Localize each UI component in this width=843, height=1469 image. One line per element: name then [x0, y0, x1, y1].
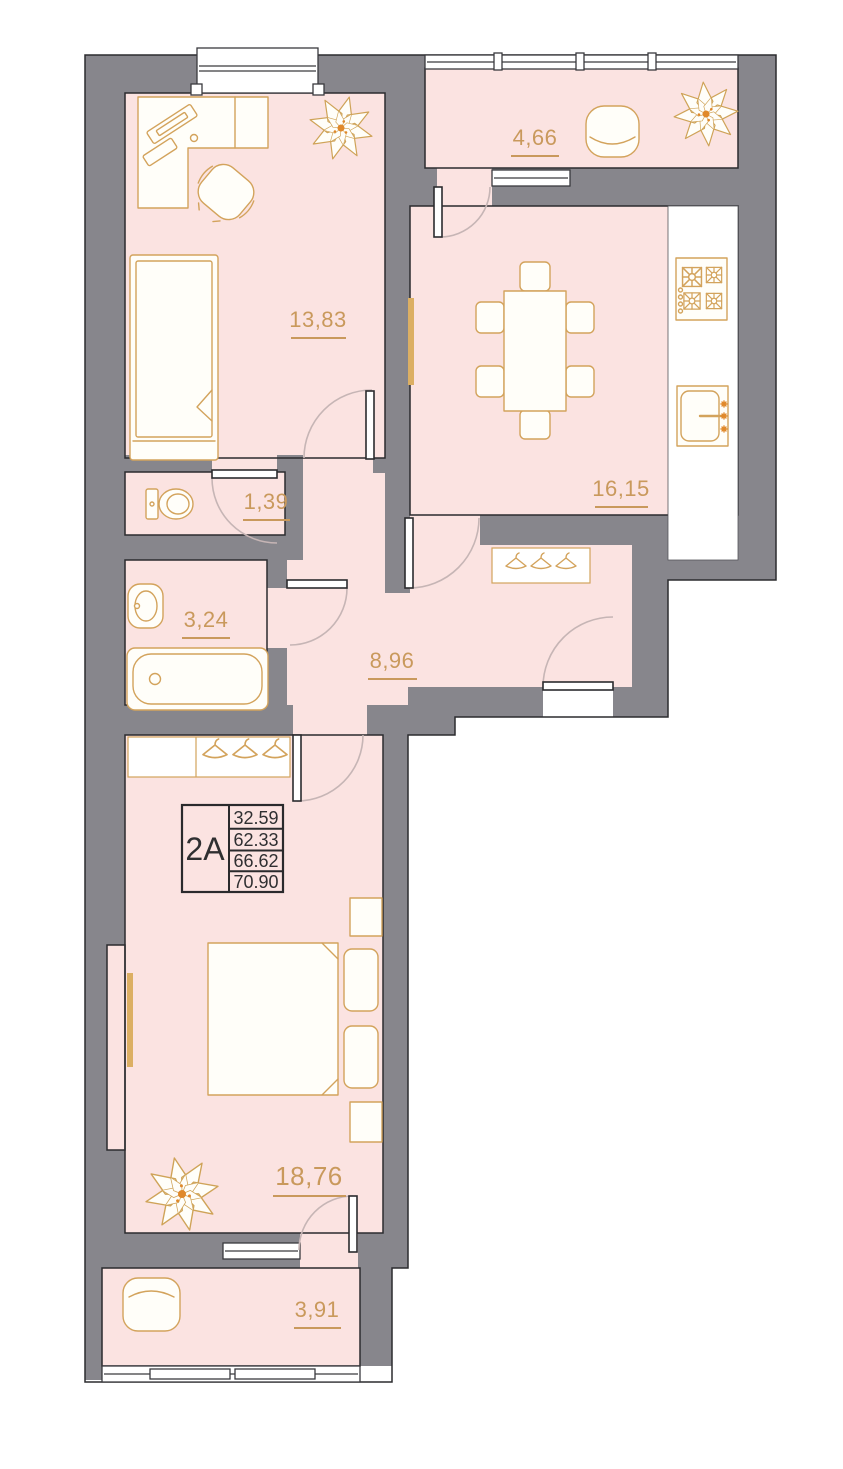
door-icon [366, 391, 374, 459]
armchair-icon [123, 1278, 180, 1331]
room-label-bedroom-top: 13,83 [289, 307, 347, 332]
dining-chair-icon [476, 366, 504, 397]
dining-chair-icon [566, 366, 594, 397]
unit-area-2: 62.33 [233, 830, 278, 850]
window-anchor [191, 84, 202, 95]
unit-area-3: 66.62 [233, 851, 278, 871]
pouf-icon [586, 106, 639, 157]
door-icon [212, 470, 277, 478]
radiator-icon [127, 973, 133, 1067]
floor-plan-drawing: 13,83 4,66 16,15 1,39 3,24 8,96 18,76 3,… [0, 0, 843, 1469]
wall-segment [738, 55, 776, 580]
bedroom-door-opening [293, 705, 367, 735]
window-mullion [576, 53, 584, 70]
dining-chair-icon [476, 302, 504, 333]
door-icon [434, 187, 442, 237]
wall-segment [85, 1268, 102, 1380]
entrance-door-opening [543, 687, 613, 717]
wall-segment [383, 730, 408, 1233]
door-icon [293, 735, 301, 801]
window-anchor [313, 84, 324, 95]
stove-icon [676, 258, 727, 320]
washbasin-icon [128, 584, 163, 628]
room-label-balcony-top: 4,66 [513, 125, 558, 150]
unit-area-1: 32.59 [233, 808, 278, 828]
bedroom-wall-niche [107, 945, 125, 1150]
wall-segment [480, 515, 632, 545]
double-bed-icon [208, 943, 338, 1095]
toilet-icon [146, 489, 193, 519]
wall-segment [267, 560, 287, 588]
bathtub-icon [127, 648, 268, 710]
window-pane [150, 1369, 230, 1379]
nightstand-icon [350, 898, 382, 936]
door-icon [543, 682, 613, 690]
window-pane [235, 1369, 315, 1379]
desk-accessory [191, 135, 198, 142]
window-mullion [494, 53, 502, 70]
window-mullion [648, 53, 656, 70]
unit-area-4: 70.90 [233, 872, 278, 892]
floor-plan-page: 13,83 4,66 16,15 1,39 3,24 8,96 18,76 3,… [0, 0, 843, 1469]
door-icon [349, 1196, 357, 1252]
room-label-bedroom-main: 18,76 [275, 1161, 343, 1191]
room-label-hallway: 8,96 [370, 648, 415, 673]
room-label-kitchen: 16,15 [592, 476, 650, 501]
kitchen-sink-icon [677, 386, 728, 446]
balcony-door-opening [437, 168, 492, 206]
nightstand-icon [350, 1102, 382, 1142]
wall-segment [85, 535, 303, 560]
pillow-icon [344, 949, 378, 1011]
dining-chair-icon [566, 302, 594, 333]
wall-segment [267, 648, 287, 705]
room-label-wc: 1,39 [244, 489, 289, 514]
wall-segment [360, 1268, 392, 1366]
bath-door-opening [267, 588, 287, 648]
radiator-icon [408, 298, 414, 385]
door-icon [287, 580, 347, 588]
wall-segment [373, 458, 385, 473]
dining-chair-icon [520, 410, 550, 439]
room-label-balcony-bottom: 3,91 [295, 1297, 340, 1322]
unit-label: 2A [185, 831, 225, 867]
dining-table-icon [504, 291, 566, 411]
pillow-icon [344, 1026, 378, 1088]
room-label-bathroom: 3,24 [184, 607, 229, 632]
door-icon [405, 518, 413, 588]
dining-chair-icon [520, 262, 550, 291]
